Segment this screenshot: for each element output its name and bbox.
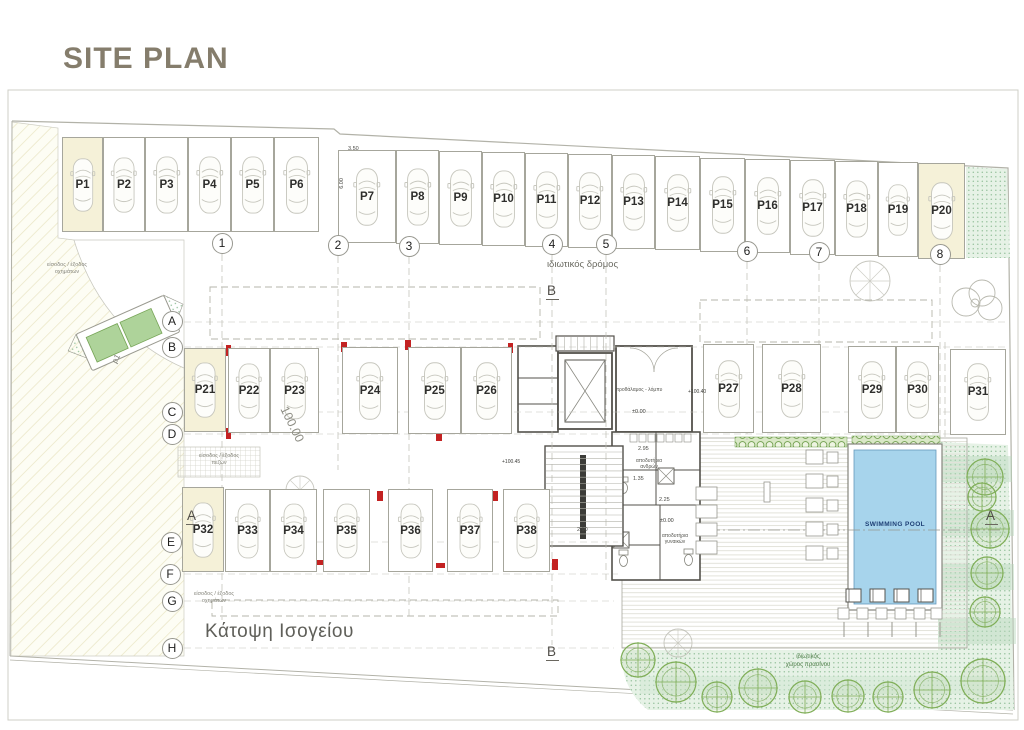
- parking-stall-p18: P18: [835, 161, 878, 256]
- parking-stall-p24: P24: [342, 347, 398, 434]
- entrance-line: είσοδος / έξοδος: [38, 262, 96, 269]
- parking-stall-label: P36: [400, 525, 420, 537]
- parking-stall-p19: P19: [878, 162, 918, 257]
- grid-marker-a: A: [162, 311, 183, 332]
- parking-stall-p14: P14: [655, 156, 700, 250]
- parking-stall-label: P17: [802, 202, 822, 214]
- entrance-line: είσοδος / έξοδος: [181, 453, 257, 460]
- parking-stall-label: P3: [159, 179, 173, 191]
- parking-stall-p34: P34: [270, 489, 317, 572]
- parking-stall-p11: P11: [525, 153, 568, 247]
- grid-marker-d: D: [162, 424, 183, 445]
- parking-stall-label: P27: [718, 383, 738, 395]
- parking-stall-label: P12: [580, 195, 600, 207]
- column-marker: [552, 559, 558, 570]
- parking-stall-p15: P15: [700, 158, 745, 252]
- vehicle-entrance-label-top: είσοδος / έξοδος οχημάτων: [38, 262, 96, 276]
- parking-stall-p8: P8: [396, 150, 439, 244]
- pool-chair: [870, 589, 885, 602]
- tree-icon: [872, 681, 904, 713]
- dim-p7-width: 3.50: [348, 146, 359, 153]
- dim-p7-depth: 6.00: [339, 178, 346, 189]
- entrance-line: πεζών: [181, 460, 257, 467]
- changing-men-label: αποδυτήρια ανδρών: [620, 458, 678, 471]
- entrance-line: είσοδος / έξοδος: [184, 591, 244, 598]
- site-plan-page: SITE PLAN: [0, 0, 1024, 730]
- parking-stall-label: P16: [757, 200, 777, 212]
- section-marker-a-right: A: [985, 508, 998, 525]
- grid-marker-7: 7: [809, 242, 830, 263]
- parking-stall-p6: P6: [274, 137, 319, 232]
- parking-stall-p1: P1: [62, 137, 103, 232]
- pergola-column: [838, 608, 849, 619]
- parking-stall-label: P35: [336, 525, 356, 537]
- parking-stall-p35: P35: [323, 489, 370, 572]
- parking-stall-label: P19: [888, 204, 908, 216]
- parking-stall-label: P1: [75, 179, 89, 191]
- parking-stall-label: P29: [862, 384, 882, 396]
- parking-stall-p36: P36: [388, 489, 433, 572]
- parking-stall-p32: P32: [182, 487, 224, 572]
- parking-stall-p21: P21: [184, 348, 226, 432]
- grid-marker-2: 2: [328, 235, 349, 256]
- pool-chair: [918, 589, 933, 602]
- parking-stall-p17: P17: [790, 160, 835, 255]
- grid-marker-1: 1: [212, 233, 233, 254]
- pergola-column: [857, 608, 868, 619]
- sun-lounger: [806, 498, 823, 512]
- tree-icon: [850, 261, 890, 301]
- column-marker: [436, 563, 445, 568]
- lobby-label: προθάλαμος - λόμπυ: [608, 387, 670, 393]
- grid-marker-f: F: [160, 564, 181, 585]
- side-table: [827, 476, 838, 487]
- pool-chair: [894, 589, 909, 602]
- parking-stall-label: P33: [237, 525, 257, 537]
- green-area-label: ιδιωτικός χώρος πρασίνου: [758, 654, 858, 669]
- parking-stall-p9: P9: [439, 151, 482, 245]
- parking-stall-label: P22: [239, 385, 259, 397]
- section-marker-a-left: A: [186, 508, 199, 525]
- sun-lounger: [806, 522, 823, 536]
- grid-marker-h: H: [162, 638, 183, 659]
- sun-lounger: [806, 474, 823, 488]
- parking-stall-p2: P2: [103, 137, 145, 232]
- parking-stall-label: P37: [460, 525, 480, 537]
- parking-stall-p4: P4: [188, 137, 231, 232]
- vehicle-entrance-label-bottom: είσοδος / έξοδος οχημάτων: [184, 591, 244, 605]
- pergola-column: [914, 608, 925, 619]
- tree-icon: [664, 629, 692, 657]
- parking-stall-label: P38: [516, 525, 536, 537]
- side-table: [827, 548, 838, 559]
- parking-stall-p5: P5: [231, 137, 274, 232]
- level-zero-lobby: ±0.00: [632, 409, 646, 416]
- grid-marker-g: G: [162, 591, 183, 612]
- parking-stall-p25: P25: [408, 347, 461, 434]
- parking-stall-label: P31: [968, 386, 988, 398]
- parking-stall-label: P30: [907, 384, 927, 396]
- grid-marker-5: 5: [596, 234, 617, 255]
- parking-stall-label: P5: [245, 179, 259, 191]
- parking-stall-p3: P3: [145, 137, 188, 232]
- section-marker-b-top: B: [546, 283, 559, 300]
- parking-stall-label: P26: [476, 385, 496, 397]
- pergola-column: [876, 608, 887, 619]
- parking-stall-label: P32: [193, 524, 213, 536]
- parking-stall-p7: P7: [338, 150, 396, 243]
- parking-stall-label: P11: [537, 194, 557, 206]
- parking-stall-p27: P27: [703, 344, 754, 433]
- changing-women-label: αποδυτήρια γυναικών: [646, 533, 704, 546]
- grid-marker-3: 3: [399, 236, 420, 257]
- dim-room-b: 2.25: [659, 497, 670, 504]
- changing-line: ανδρών: [620, 464, 678, 470]
- grid-marker-6: 6: [737, 241, 758, 262]
- parking-stall-label: P10: [493, 193, 513, 205]
- parking-stall-label: P15: [712, 199, 732, 211]
- dim-stair: 2.90: [577, 527, 588, 534]
- page-title: SITE PLAN: [63, 42, 229, 76]
- sun-lounger: [806, 546, 823, 560]
- sun-lounger: [696, 487, 717, 500]
- grid-marker-8: 8: [930, 244, 951, 265]
- parking-stall-p26: P26: [461, 347, 512, 434]
- grid-marker-4: 4: [542, 234, 563, 255]
- parking-stall-label: P2: [117, 179, 131, 191]
- parking-stall-label: P8: [410, 191, 424, 203]
- parking-stall-p28: P28: [762, 344, 821, 433]
- parking-stall-p33: P33: [225, 489, 270, 572]
- sun-lounger: [696, 505, 717, 518]
- level-plus-100-40: +100.40: [688, 389, 706, 395]
- parking-stall-label: P9: [453, 192, 467, 204]
- plan-title: Κάτοψη Ισογείου: [205, 620, 354, 644]
- pergola-column: [895, 608, 906, 619]
- column-marker: [377, 491, 383, 501]
- section-marker-b-bottom: B: [546, 644, 559, 661]
- parking-stall-label: P21: [195, 384, 215, 396]
- green-area-label-line1: ιδιωτικός: [758, 654, 858, 662]
- side-table: [827, 500, 838, 511]
- pool-chair: [846, 589, 861, 602]
- sun-lounger: [806, 450, 823, 464]
- parking-stall-p37: P37: [447, 489, 493, 572]
- parking-stall-p38: P38: [503, 489, 550, 572]
- grid-marker-b: B: [162, 337, 183, 358]
- parking-stall-p22: P22: [228, 348, 270, 433]
- tree-icon: [969, 596, 1001, 628]
- parking-stall-label: P18: [846, 203, 866, 215]
- green-area-label-line2: χώρος πρασίνου: [758, 662, 858, 670]
- parking-stall-p10: P10: [482, 152, 525, 246]
- tree-icon: [701, 681, 733, 713]
- dim-room-a: 1.35: [633, 476, 644, 483]
- pool-label: SWIMMING POOL: [852, 521, 938, 529]
- changing-line: γυναικών: [646, 539, 704, 545]
- road-label: ιδιωτικός δρόμος: [520, 259, 645, 271]
- parking-stall-label: P25: [424, 385, 444, 397]
- side-table: [827, 452, 838, 463]
- dim-room-w: 2.95: [638, 446, 649, 453]
- parking-stall-label: P13: [623, 196, 643, 208]
- pergola-column: [931, 608, 942, 619]
- level-plus-100-45: +100.45: [502, 459, 520, 465]
- parking-stall-p29: P29: [848, 346, 896, 433]
- parking-stall-p30: P30: [896, 346, 939, 433]
- parking-stall-p13: P13: [612, 155, 655, 249]
- parking-stall-p31: P31: [950, 349, 1006, 435]
- parking-stall-label: P20: [931, 205, 951, 217]
- parking-stall-label: P34: [283, 525, 303, 537]
- parking-stall-label: P7: [360, 191, 374, 203]
- parking-stall-label: P28: [781, 383, 801, 395]
- pedestrian-entrance-label: είσοδος / έξοδος πεζών: [181, 453, 257, 467]
- parking-stall-label: P14: [667, 197, 687, 209]
- side-table: [827, 524, 838, 535]
- parking-stall-label: P24: [360, 385, 380, 397]
- parking-stall-label: P4: [202, 179, 216, 191]
- parking-stall-p16: P16: [745, 159, 790, 253]
- parking-stall-label: P23: [284, 385, 304, 397]
- entrance-line: οχημάτων: [184, 598, 244, 605]
- grid-marker-e: E: [161, 532, 182, 553]
- level-zero-rooms: ±0.00: [660, 518, 674, 525]
- entrance-line: οχημάτων: [38, 269, 96, 276]
- grid-marker-c: C: [162, 402, 183, 423]
- parking-stall-label: P6: [289, 179, 303, 191]
